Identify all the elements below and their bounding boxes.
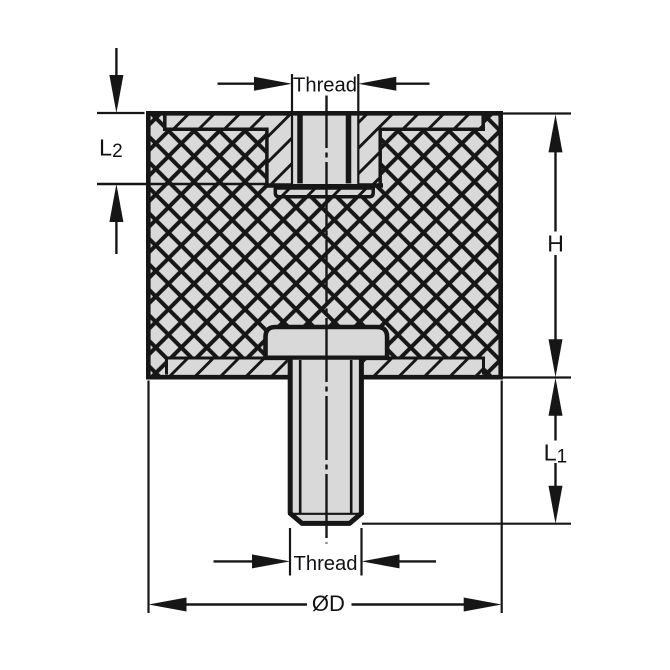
svg-text:Thread: Thread [294,553,358,575]
svg-text:H: H [547,231,564,257]
svg-text:Thread: Thread [293,74,357,96]
svg-text:ØD: ØD [312,591,345,616]
